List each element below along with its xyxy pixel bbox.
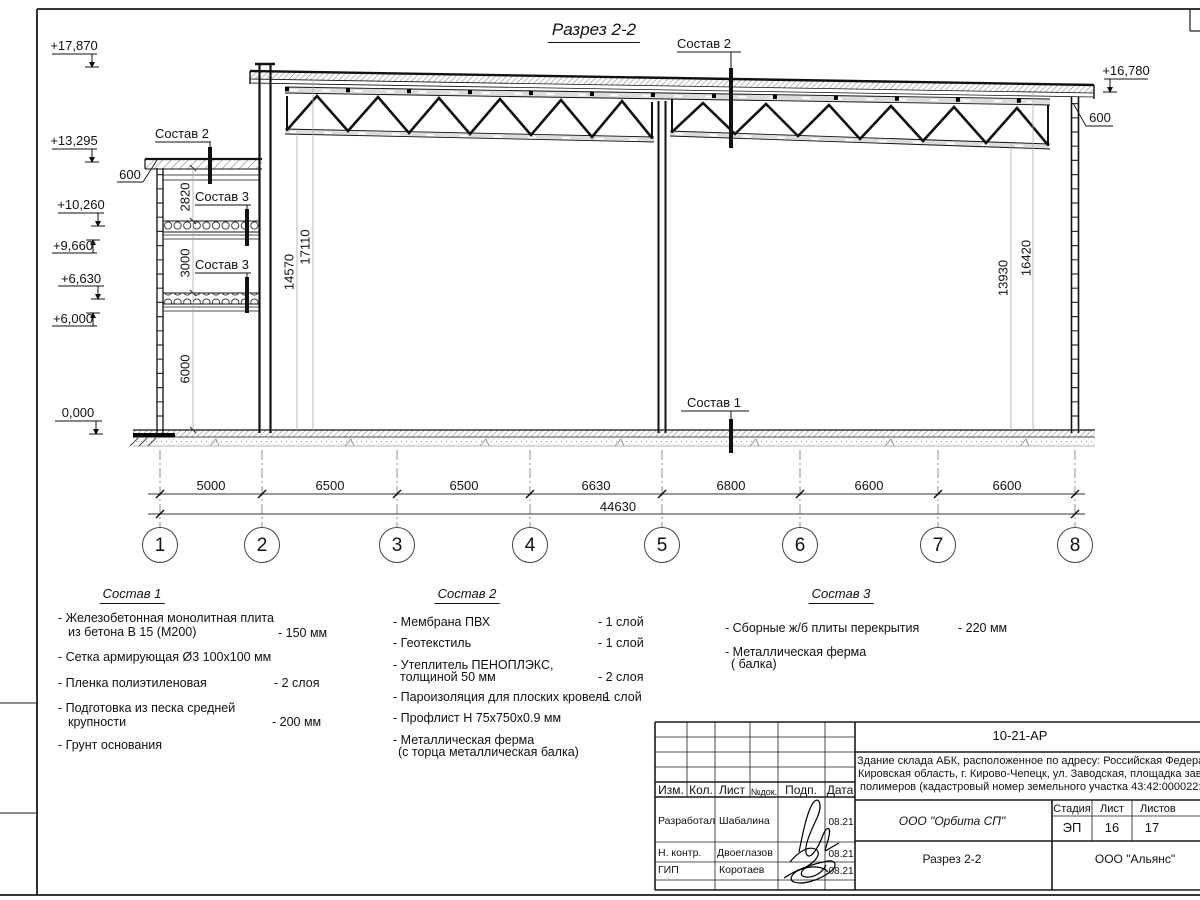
row2-role: Н. контр.	[658, 847, 701, 859]
axis-5: 5	[657, 535, 668, 557]
col-kol: Кол.	[689, 784, 713, 798]
sheets-label: Листов	[1140, 803, 1176, 816]
legend-1-item: крупности	[68, 715, 126, 729]
legend-2-item: - Пароизоляция для плоских кровель	[393, 690, 609, 704]
project-description-line2: Кировская область, г. Кирово-Чепецк, ул.…	[858, 768, 1200, 781]
legend-1-value: - 200 мм	[272, 715, 321, 729]
drawing-name: Разрез 2-2	[923, 853, 982, 867]
span-dim-7: 6600	[993, 479, 1022, 494]
legend-2-title: Состав 2	[435, 587, 500, 604]
vdim-13930: 13930	[997, 260, 1012, 296]
legend-1-item: - Подготовка из песка средней	[58, 701, 235, 715]
sheet-label: Лист	[1100, 803, 1124, 816]
legend-1-item: - Железобетонная монолитная плита	[58, 611, 274, 625]
elevation-6000: +6,000	[53, 312, 93, 327]
span-dim-2: 6500	[316, 479, 345, 494]
callout-sostav3-upper: Состав 3	[195, 190, 249, 205]
legend-1-item: из бетона В 15 (М200)	[68, 625, 196, 639]
vdim-16420: 16420	[1020, 240, 1035, 276]
axis-6: 6	[795, 535, 806, 557]
callout-sostav2-top: Состав 2	[677, 37, 731, 52]
overhang-left-label: 600	[119, 168, 141, 183]
design-company: ООО "Орбита СП"	[899, 815, 1006, 829]
legend-3-value: - 220 мм	[958, 621, 1007, 635]
drawing-sheet: Разрез 2-2 +17,870 +13,295 +10,260 +9,66…	[0, 0, 1200, 900]
legend-2-value: - 1 слой	[598, 615, 644, 629]
vdim-2820: 2820	[179, 183, 194, 212]
row2-name: Двоеглазов	[717, 847, 773, 859]
col-list: Лист	[719, 784, 745, 798]
legend-1-title: Состав 1	[100, 587, 165, 604]
vdim-6000: 6000	[179, 355, 194, 384]
legend-1-value: - 150 мм	[278, 626, 327, 640]
row3-name: Коротаев	[719, 864, 764, 876]
span-dim-5: 6800	[717, 479, 746, 494]
span-dim-3: 6500	[450, 479, 479, 494]
sheets-value: 17	[1145, 821, 1159, 836]
legend-3-item: - Сборные ж/б плиты перекрытия	[725, 621, 919, 635]
legend-1-value: - 2 слоя	[274, 676, 319, 690]
total-dim: 44630	[600, 500, 636, 515]
elevation-16780: +16,780	[1102, 64, 1149, 79]
elevation-17870: +17,870	[50, 39, 97, 54]
callout-sostav2-left: Состав 2	[155, 127, 209, 142]
elevation-0000: 0,000	[62, 406, 95, 421]
drawing-title: Разрез 2-2	[548, 20, 640, 43]
elevation-6630: +6,630	[61, 272, 101, 287]
span-dim-4: 6630	[582, 479, 611, 494]
elevation-9660: +9,660	[53, 239, 93, 254]
legend-2-item: - Профлист Н 75х750х0.9 мм	[393, 711, 561, 725]
axis-1: 1	[155, 535, 166, 557]
col-izm: Изм.	[658, 784, 684, 798]
elevation-13295: +13,295	[50, 134, 97, 149]
elevation-marks	[52, 54, 1148, 435]
legend-2-item: (с торца металлическая балка)	[398, 745, 579, 759]
legend-2-item: - Геотекстиль	[393, 636, 471, 650]
axis-7: 7	[933, 535, 944, 557]
legend-2-item: - Мембрана ПВХ	[393, 615, 490, 629]
legend-2-value: - 1 слой	[596, 690, 642, 704]
ground-slab	[130, 430, 1095, 446]
stage-label: Стадия	[1053, 803, 1091, 816]
legend-1-item: - Сетка армирующая Ø3 100х100 мм	[58, 650, 271, 664]
elevation-10260: +10,260	[57, 198, 104, 213]
col-data: Дата	[827, 784, 854, 798]
span-dim-1: 5000	[197, 479, 226, 494]
vdim-14570: 14570	[283, 254, 298, 290]
legend-2-value: - 2 слоя	[598, 670, 643, 684]
doc-number: 10-21-АР	[993, 729, 1048, 744]
contractor-company: ООО "Альянс"	[1095, 853, 1175, 867]
vdim-3000: 3000	[179, 249, 194, 278]
legend-1-item: - Пленка полиэтиленовая	[58, 676, 207, 690]
legend-1-item: - Грунт основания	[58, 738, 162, 752]
row1-name: Шабалина	[719, 815, 770, 827]
col-ndok: №док.	[751, 787, 777, 797]
row3-role: ГИП	[658, 864, 679, 876]
col-podp: Подп.	[785, 784, 817, 798]
axis-2: 2	[257, 535, 268, 557]
callout-sostav1: Состав 1	[687, 396, 741, 411]
legend-3-title: Состав 3	[809, 587, 874, 604]
row2-date: 08.21	[828, 849, 853, 861]
project-description-line3: полимеров (кадастровый номер земельного …	[860, 781, 1200, 794]
row3-date: 08.21	[828, 866, 853, 878]
roof-truss	[285, 87, 1050, 149]
axis-3: 3	[392, 535, 403, 557]
callout-sostav3-lower: Состав 3	[195, 258, 249, 273]
overhang-right-label: 600	[1089, 111, 1111, 126]
row1-role: Разработал	[658, 815, 715, 827]
vdim-17110: 17110	[299, 229, 314, 264]
legend-2-item: толщиной 50 мм	[400, 670, 496, 684]
axis-circles	[143, 528, 1093, 563]
row1-date: 08.21	[828, 817, 853, 829]
stage-value: ЭП	[1063, 821, 1082, 836]
axis-8: 8	[1070, 535, 1081, 557]
legend-2-value: - 1 слой	[598, 636, 644, 650]
legend-3-item: ( балка)	[731, 657, 777, 671]
sheet-value: 16	[1105, 821, 1119, 836]
span-dim-6: 6600	[855, 479, 884, 494]
axis-4: 4	[525, 535, 536, 557]
project-description-line1: Здание склада АБК, расположенное по адре…	[857, 755, 1200, 768]
